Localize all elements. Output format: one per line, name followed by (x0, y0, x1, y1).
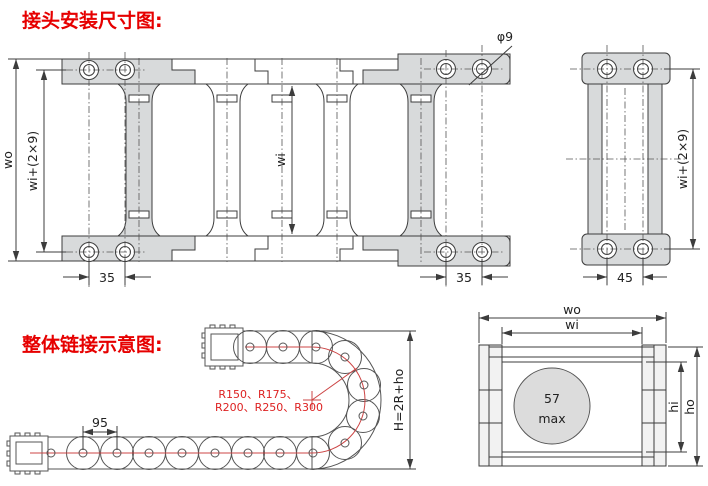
dim-section-wo-label: wo (563, 302, 581, 317)
bore-value-label: 57 (544, 391, 560, 406)
engineering-drawing-page: 接头安装尺寸图: 整体链接示意图: (0, 0, 708, 486)
end-block-top (582, 53, 670, 84)
schematic-title: 整体链接示意图: (22, 333, 163, 356)
dim-end-wi-plus-label: wi+(2×9) (675, 129, 690, 189)
dim-end-pitch-label: 45 (617, 270, 633, 285)
cable-bore-circle (514, 368, 590, 444)
dim-end-wi-plus: wi+(2×9) (664, 69, 700, 249)
dim-section-hi-label: hi (666, 401, 681, 412)
end-bracket-view: 45 wi+(2×9) (566, 45, 700, 286)
bend-radii-line1: R150、R175、 (218, 388, 297, 401)
dim-pitch-left-label: 35 (99, 270, 115, 285)
main-assembly-view: wo wi+(2×9) wi 35 35 φ9 (0, 29, 513, 287)
dim-bend-height-label: H=2R+ho (391, 369, 406, 432)
end-block-bottom (582, 234, 670, 265)
dim-section-ho-label: ho (682, 399, 697, 415)
bend-radii-line2: R200、R250、R300 (215, 401, 323, 414)
section-bottom-band (489, 452, 654, 466)
dim-hole-dia-label: φ9 (497, 29, 513, 44)
cross-section-view: 57 max wo wi hi ho (479, 302, 703, 466)
dim-section-wi: wi (502, 317, 642, 344)
dim-wi-plus-label: wi+(2×9) (25, 131, 40, 191)
dim-section-wi-label: wi (565, 317, 579, 332)
drawing-canvas: 接头安装尺寸图: 整体链接示意图: (0, 0, 708, 486)
bore-unit-label: max (538, 411, 565, 426)
page-title: 接头安装尺寸图: (22, 9, 163, 32)
dim-wi-plus: wi+(2×9) (25, 70, 66, 252)
section-side-plate-left (479, 345, 502, 466)
upper-end-bracket (202, 325, 243, 369)
dim-wo-label: wo (0, 151, 15, 169)
dim-pitch-left: 35 (63, 259, 151, 285)
dim-pitch-right-label: 35 (456, 270, 472, 285)
dim-link-pitch-label: 95 (92, 415, 108, 430)
section-top-band (489, 347, 654, 362)
dim-wi-label: wi (273, 153, 288, 167)
